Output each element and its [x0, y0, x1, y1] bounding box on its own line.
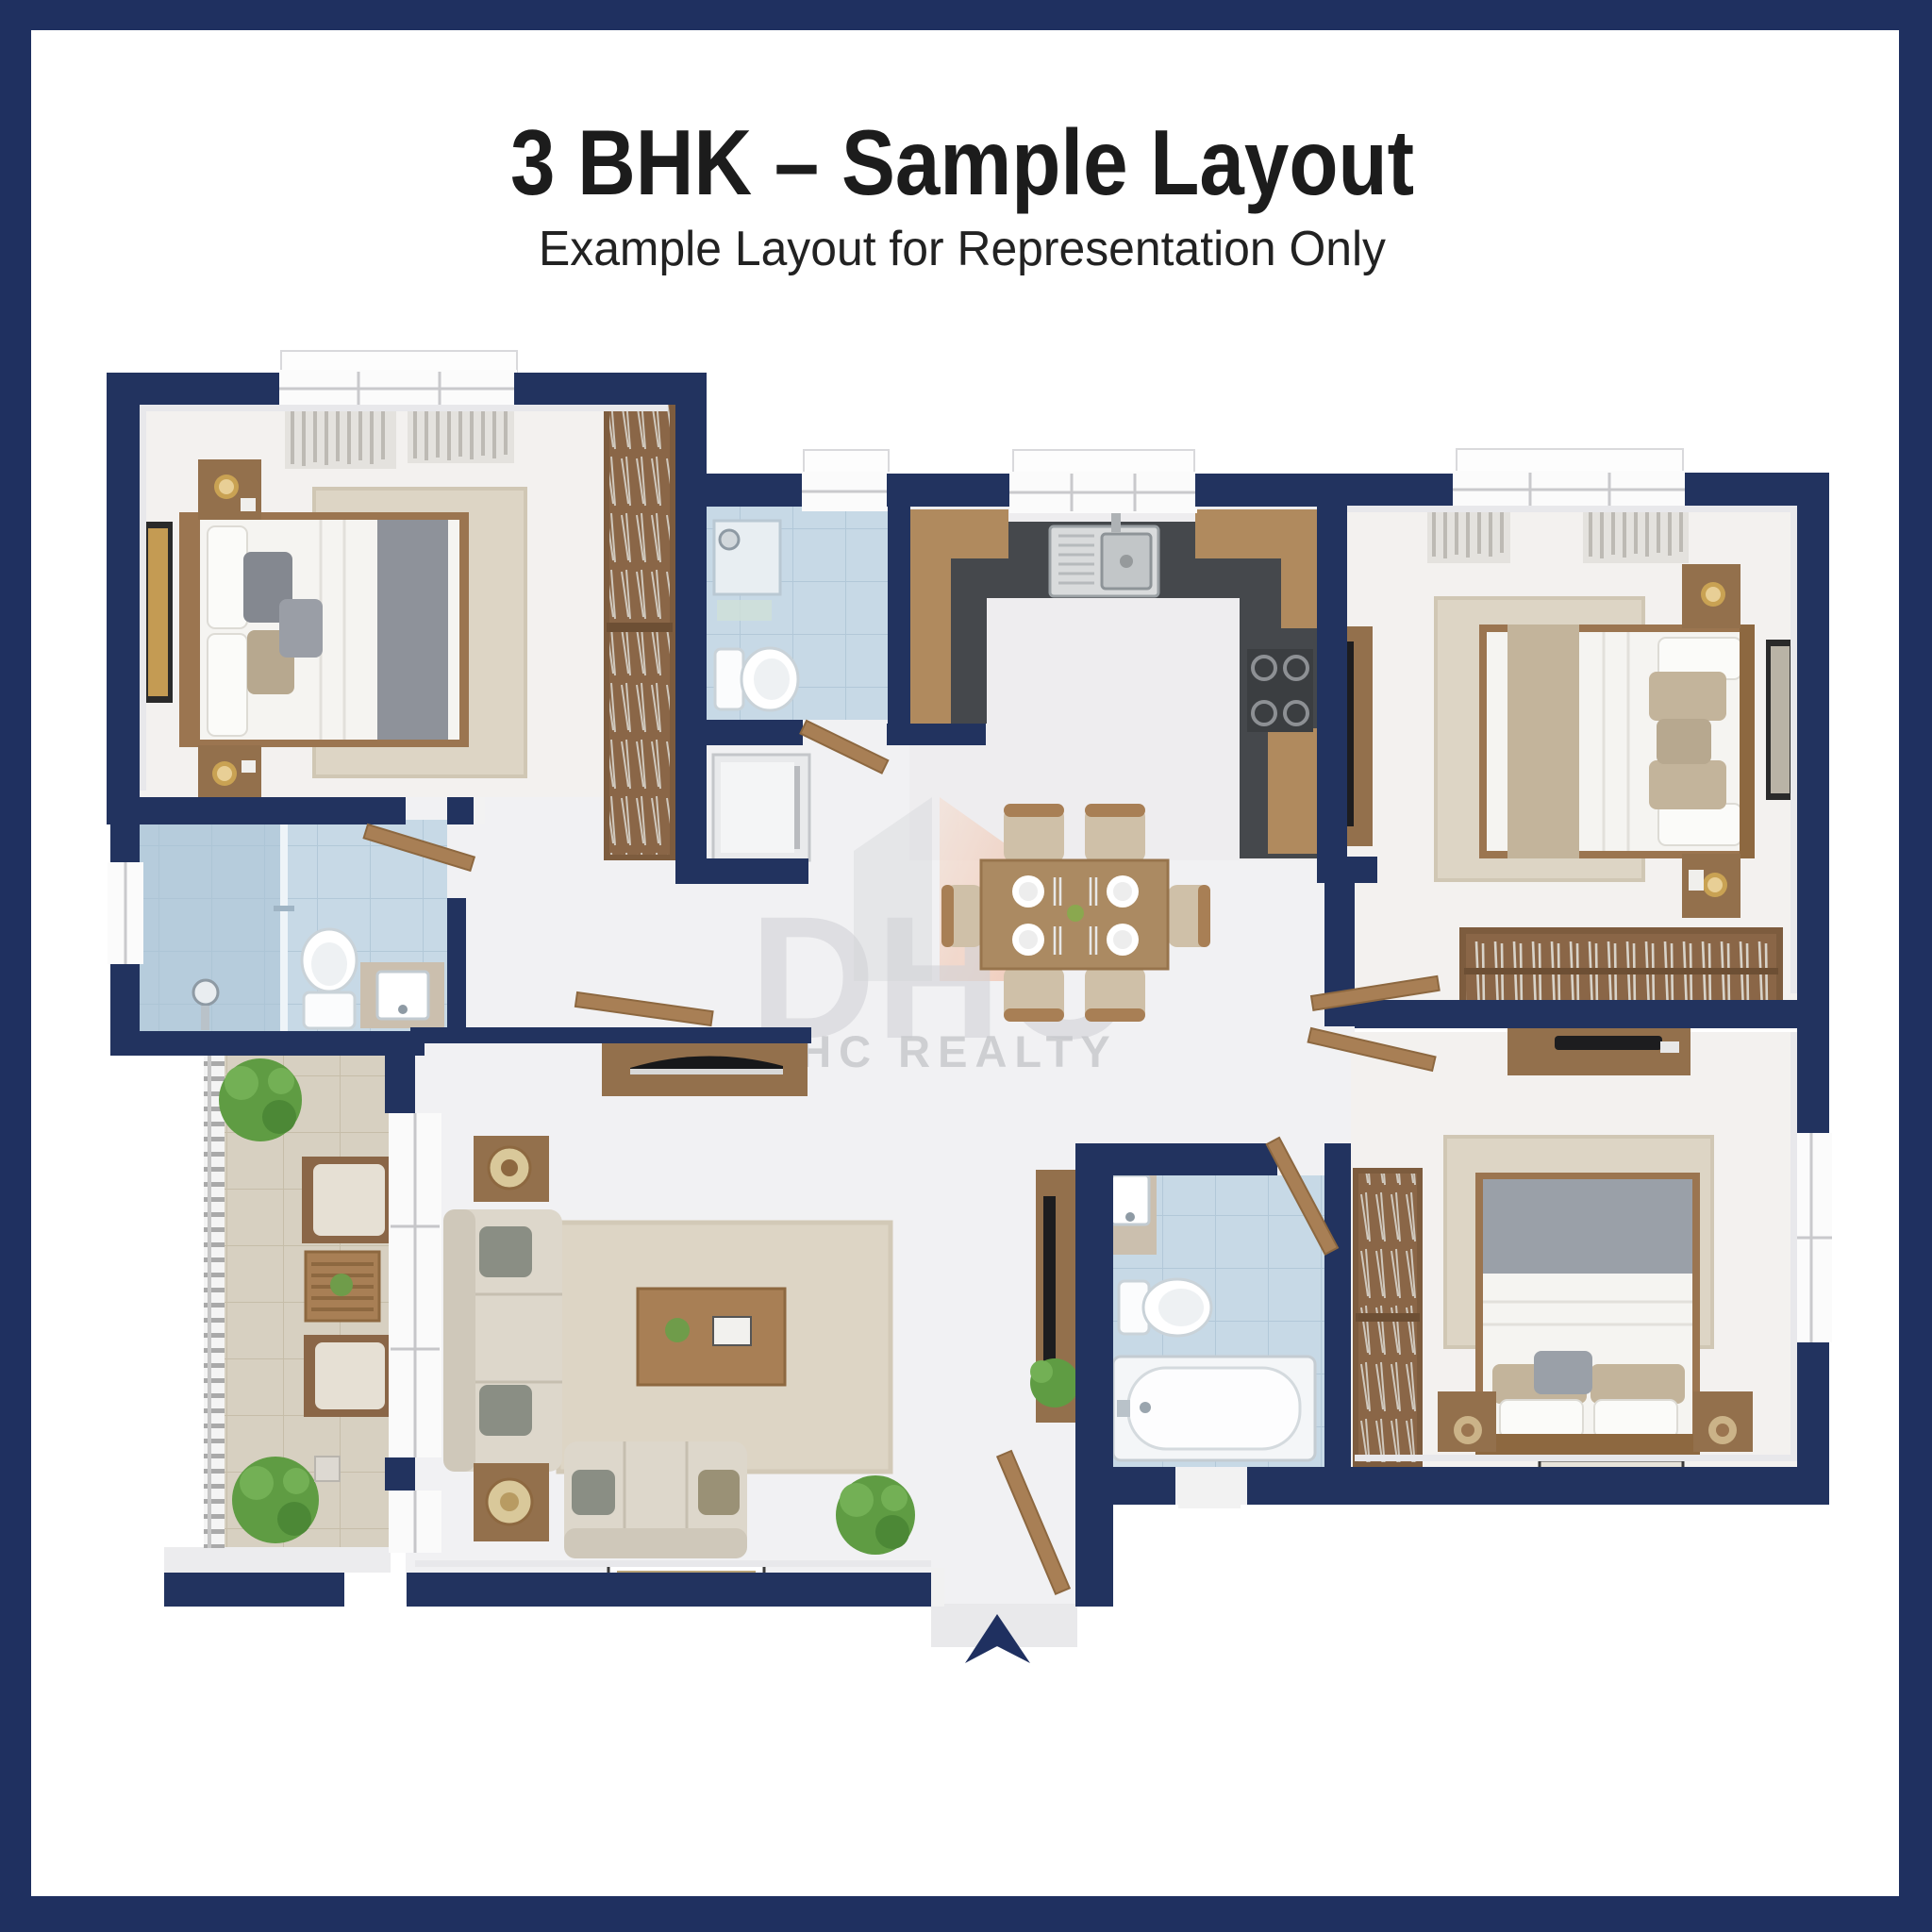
svg-text:Example Layout for Representat: Example Layout for Representation Only [539, 222, 1386, 276]
svg-text:3 BHK – Sample Layout: 3 BHK – Sample Layout [510, 110, 1414, 214]
svg-text:DHC REALTY: DHC REALTY [759, 1026, 1117, 1076]
